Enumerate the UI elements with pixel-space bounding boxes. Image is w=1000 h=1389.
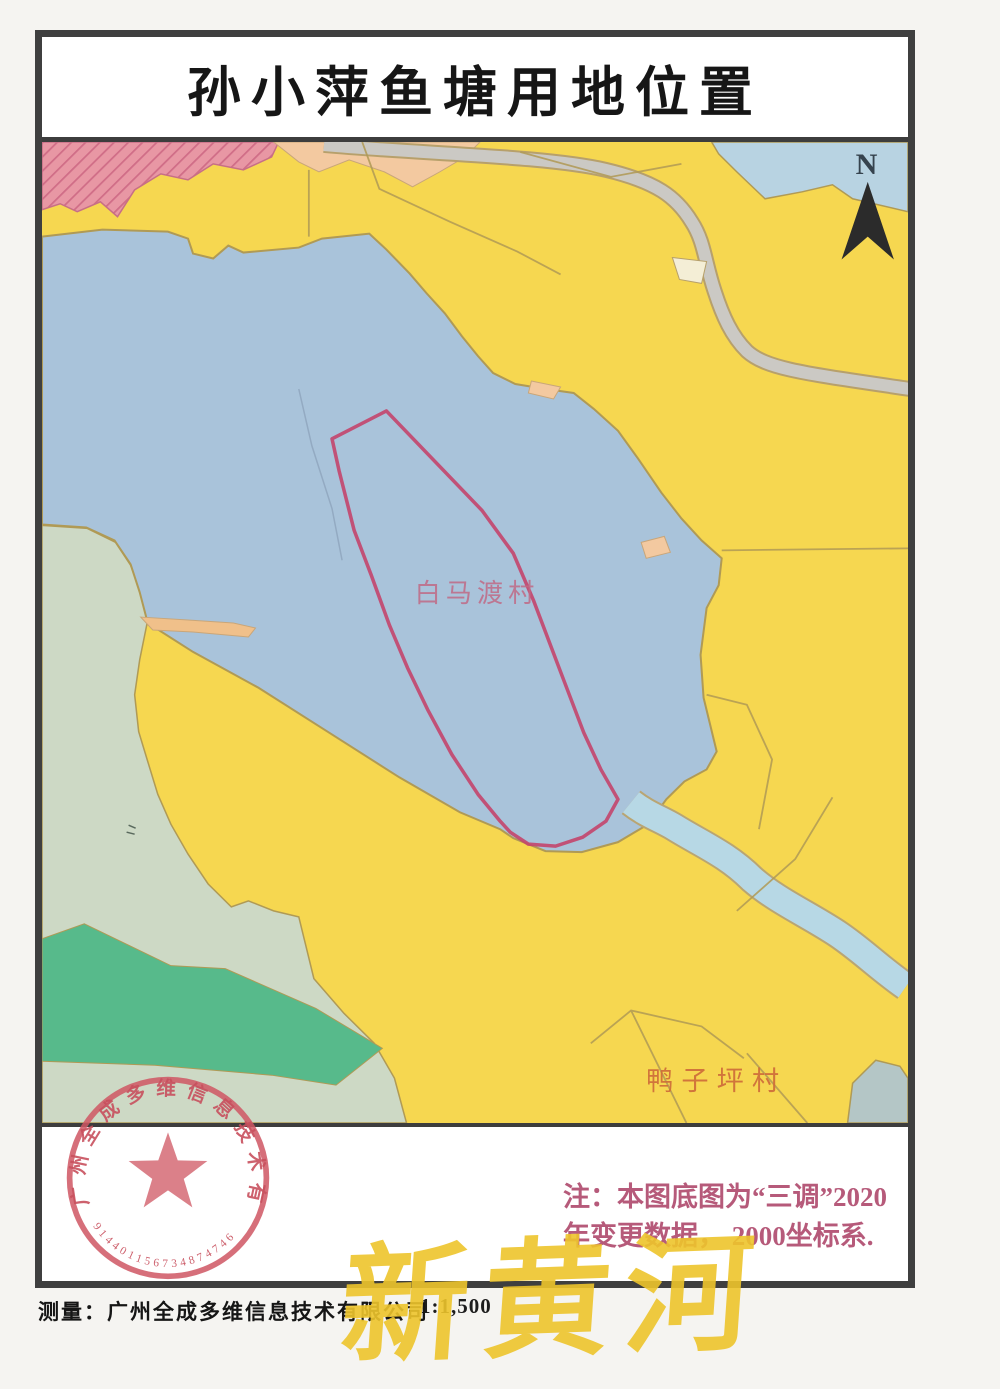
title-box: 孙小萍鱼塘用地位置 [42,37,908,142]
page: { "page": { "title": "孙小萍鱼塘用地位置", "north… [0,0,1000,1376]
note-line-1: 注：本图底图为“三调”2020 [563,1178,928,1217]
surveyor-caption: 测量：广州全成多维信息技术有限公司 [38,1296,429,1326]
map-title: 孙小萍鱼塘用地位置 [187,48,763,127]
note-line-2: 年变更数据， 2000坐标系. [563,1217,928,1256]
map-canvas: 白马渡村 鸭子坪村 N [42,142,908,1123]
scale-text: 1:1,500 [420,1294,492,1319]
north-label: N [856,148,878,181]
map-area: 白马渡村 鸭子坪村 N [42,142,908,1127]
company-stamp: 广州全成多维信息技术有限公司 914401156734874746 [52,1070,284,1290]
stamp-star-icon [129,1132,208,1207]
village-label-baimadu: 白马渡村 [415,579,540,608]
map-note: 注：本图底图为“三调”2020 年变更数据， 2000坐标系. [563,1178,928,1256]
village-label-yaziping: 鸭子坪村 [646,1066,787,1096]
